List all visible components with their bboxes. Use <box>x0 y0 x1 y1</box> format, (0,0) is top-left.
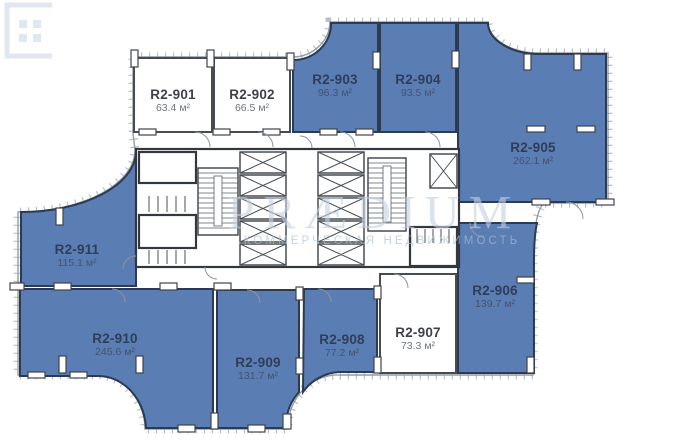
unit-area: 139.7 м² <box>472 299 517 311</box>
unit-label-r2-901: R2-901 63.4 м² <box>150 87 195 115</box>
unit-name: R2-907 <box>395 325 440 340</box>
unit-label-r2-903: R2-903 96.3 м² <box>312 72 357 100</box>
unit-name: R2-901 <box>150 87 195 102</box>
unit-name: R2-902 <box>229 87 274 102</box>
core-room <box>139 152 196 183</box>
unit-shape-r2-907[interactable] <box>380 274 456 373</box>
unit-shape-r2-905[interactable] <box>458 23 606 202</box>
unit-label-r2-902: R2-902 66.5 м² <box>229 87 274 115</box>
unit-label-r2-906: R2-906 139.7 м² <box>472 283 517 311</box>
unit-area: 131.7 м² <box>235 371 280 383</box>
unit-area: 66.5 м² <box>229 103 274 115</box>
unit-area: 115.1 м² <box>55 258 100 270</box>
unit-label-r2-911: R2-911 115.1 м² <box>55 242 100 270</box>
unit-label-r2-907: R2-907 73.3 м² <box>395 325 440 353</box>
unit-name: R2-909 <box>235 355 280 370</box>
unit-area: 63.4 м² <box>150 103 195 115</box>
unit-label-r2-908: R2-908 77.2 м² <box>319 332 364 360</box>
stair-rail <box>214 176 222 226</box>
floor-plan: PRÆDIUM КОММЕРЧЕСКАЯ НЕДВИЖИМОСТЬ R2-901… <box>0 0 683 443</box>
unit-area: 77.2 м² <box>319 348 364 360</box>
unit-name: R2-911 <box>55 242 100 257</box>
unit-name: R2-903 <box>312 72 357 87</box>
unit-label-r2-904: R2-904 93.5 м² <box>395 72 440 100</box>
core-room <box>139 215 196 248</box>
elevator-bank <box>318 152 364 265</box>
unit-area: 96.3 м² <box>312 88 357 100</box>
unit-name: R2-905 <box>510 140 555 155</box>
unit-label-r2-905: R2-905 262.1 м² <box>510 140 555 168</box>
unit-area: 245.6 м² <box>92 347 137 359</box>
unit-name: R2-906 <box>472 283 517 298</box>
unit-area: 73.3 м² <box>395 341 440 353</box>
floor-plan-drawing <box>0 0 683 443</box>
unit-label-r2-910: R2-910 245.6 м² <box>92 331 137 359</box>
unit-name: R2-910 <box>92 331 137 346</box>
elevator-bank <box>240 152 286 265</box>
unit-area: 262.1 м² <box>510 156 555 168</box>
unit-name: R2-908 <box>319 332 364 347</box>
unit-area: 93.5 м² <box>395 88 440 100</box>
unit-name: R2-904 <box>395 72 440 87</box>
service-core <box>136 149 459 267</box>
stair-rail <box>383 166 391 222</box>
unit-label-r2-909: R2-909 131.7 м² <box>235 355 280 383</box>
